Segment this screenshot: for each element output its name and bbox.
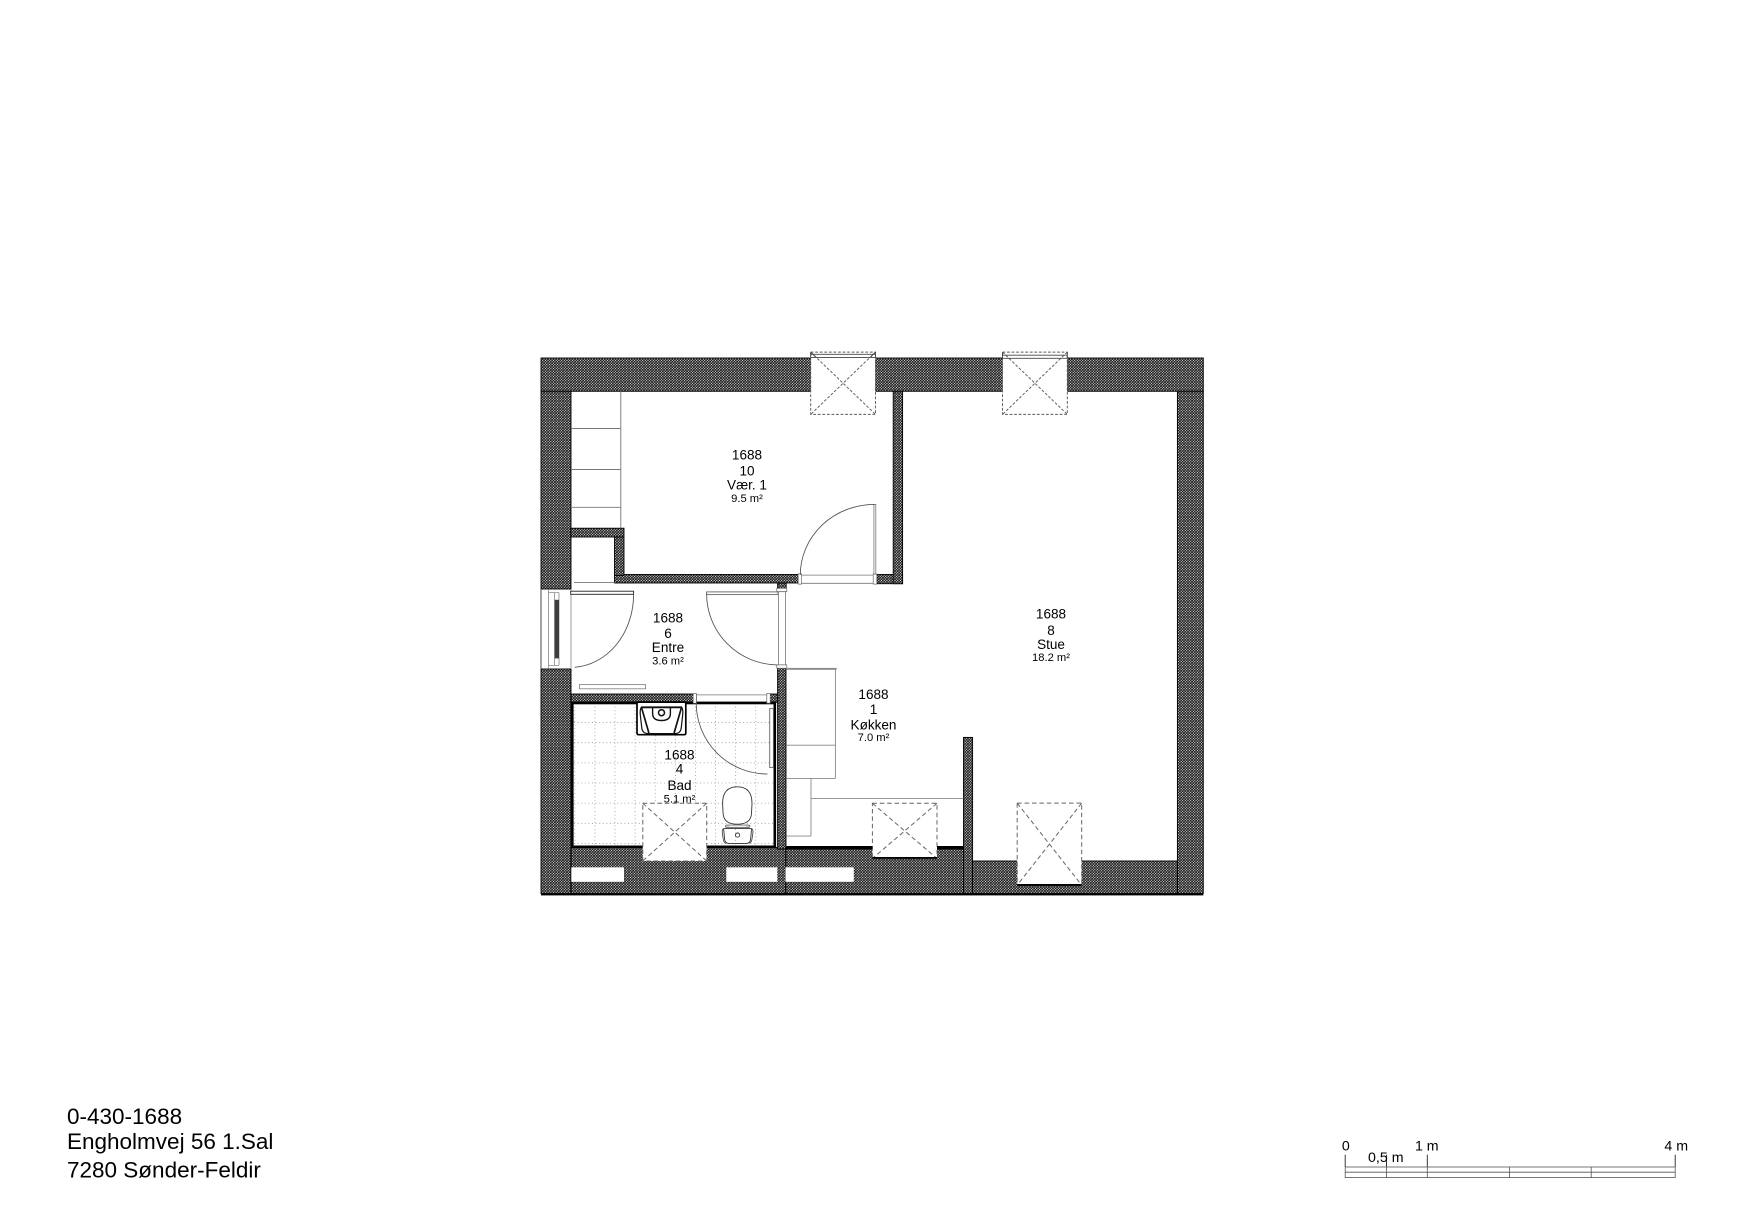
svg-text:4 m: 4 m bbox=[1664, 1139, 1688, 1155]
svg-text:10: 10 bbox=[739, 464, 754, 479]
svg-text:9.5 m²: 9.5 m² bbox=[731, 493, 763, 505]
svg-text:Stue: Stue bbox=[1037, 637, 1065, 652]
svg-text:5.1 m²: 5.1 m² bbox=[664, 793, 696, 805]
svg-text:1688: 1688 bbox=[653, 610, 683, 625]
svg-text:Bad: Bad bbox=[667, 778, 691, 793]
svg-text:0: 0 bbox=[1342, 1139, 1350, 1155]
svg-text:7280 Sønder-Feldir: 7280 Sønder-Feldir bbox=[67, 1158, 261, 1183]
svg-text:0-430-1688: 0-430-1688 bbox=[67, 1104, 182, 1129]
svg-text:1688: 1688 bbox=[664, 748, 694, 763]
svg-text:0,5 m: 0,5 m bbox=[1368, 1150, 1403, 1166]
svg-text:4: 4 bbox=[676, 762, 684, 777]
svg-text:18.2 m²: 18.2 m² bbox=[1032, 652, 1070, 664]
svg-text:8: 8 bbox=[1047, 623, 1055, 638]
svg-text:Entre: Entre bbox=[652, 640, 684, 655]
svg-text:1688: 1688 bbox=[732, 448, 762, 463]
svg-text:Køkken: Køkken bbox=[851, 717, 897, 732]
svg-text:Vær. 1: Vær. 1 bbox=[727, 478, 767, 493]
svg-text:Engholmvej 56 1.Sal: Engholmvej 56 1.Sal bbox=[67, 1129, 273, 1154]
svg-text:3.6 m²: 3.6 m² bbox=[652, 655, 684, 667]
svg-text:1: 1 bbox=[870, 702, 878, 717]
svg-text:1688: 1688 bbox=[1036, 607, 1066, 622]
svg-text:1688: 1688 bbox=[858, 687, 888, 702]
svg-text:1 m: 1 m bbox=[1415, 1139, 1439, 1155]
svg-text:7.0 m²: 7.0 m² bbox=[858, 732, 890, 744]
